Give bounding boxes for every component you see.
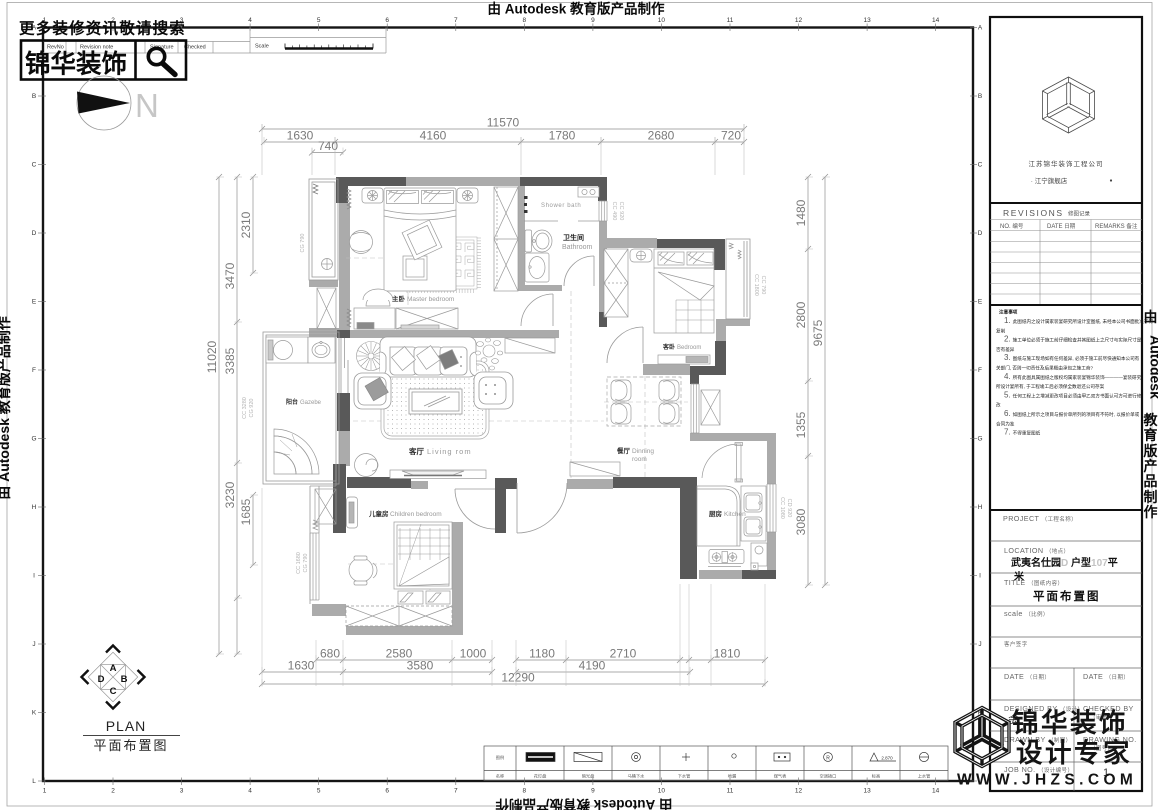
svg-text:12: 12 [795,788,803,795]
svg-text:1780: 1780 [549,129,576,143]
svg-text:11020: 11020 [205,340,219,373]
svg-text:F: F [32,367,36,374]
svg-text:CD 920: CD 920 [786,499,792,518]
svg-text:11: 11 [727,17,734,24]
svg-text:680: 680 [320,647,340,661]
svg-text:REVISIONS: REVISIONS [1003,208,1064,218]
svg-text:H: H [978,504,983,511]
svg-text:CC 790: CC 790 [760,276,766,295]
svg-text:3470: 3470 [223,262,237,289]
svg-text:Autodesk: Autodesk [1148,335,1158,399]
svg-text:9675: 9675 [811,319,825,346]
svg-text:9: 9 [591,17,595,24]
svg-text:3: 3 [180,788,184,795]
svg-text:1480: 1480 [794,199,808,226]
svg-text:图例: 图例 [496,754,504,761]
svg-text:卫生间: 卫生间 [563,233,584,242]
svg-text:马桶下水: 马桶下水 [628,773,646,780]
svg-text:1180: 1180 [529,647,555,661]
svg-text:6: 6 [385,17,389,24]
svg-text:9: 9 [591,788,595,795]
svg-text:14: 14 [932,17,940,24]
svg-text:E: E [978,299,983,306]
svg-text:否有差异: 否有差异 [996,346,1015,353]
svg-text:G: G [977,436,982,443]
svg-text:H: H [32,504,37,511]
svg-text:1630: 1630 [288,659,315,673]
svg-text:3230: 3230 [223,481,237,508]
svg-text:D: D [32,230,37,237]
svg-text:Kitchen: Kitchen [724,511,746,518]
svg-text:DATE 日期: DATE 日期 [1047,223,1076,230]
svg-text:CG 920: CG 920 [249,399,255,418]
svg-text:2310: 2310 [239,211,253,238]
svg-text:4190: 4190 [579,659,606,673]
svg-text:8: 8 [522,788,526,795]
svg-text:Children bedroom: Children bedroom [390,511,442,518]
svg-text:客户签字: 客户签字 [1004,640,1028,648]
svg-text:7: 7 [454,17,458,24]
svg-text:A: A [978,25,983,32]
svg-text:产: 产 [1144,458,1158,474]
svg-text:4: 4 [248,17,252,24]
svg-text:CG 790: CG 790 [303,554,309,573]
svg-text:儿童房: 儿童房 [368,509,389,518]
svg-text:客厅: 客厅 [408,446,424,456]
svg-text:B: B [978,93,982,100]
svg-text:D: D [98,674,105,685]
svg-text:2800: 2800 [794,301,808,328]
svg-text:3580: 3580 [407,659,434,673]
svg-text:13: 13 [863,788,871,795]
svg-text:PLAN: PLAN [106,718,147,734]
svg-text:1: 1 [43,788,47,795]
svg-text:10: 10 [658,17,666,24]
svg-text:1810: 1810 [714,647,741,661]
svg-text:CC 1800: CC 1800 [753,274,759,296]
svg-text:4: 4 [248,788,252,795]
svg-text:名称: 名称 [496,773,504,780]
svg-text:3080: 3080 [794,508,808,535]
svg-text:E: E [32,299,37,306]
svg-text:A: A [110,663,117,674]
svg-text:CC 1680: CC 1680 [296,552,302,574]
svg-text:空调插口: 空调插口 [820,773,837,780]
svg-text:11: 11 [727,788,734,795]
svg-text:R: R [826,756,830,762]
svg-text:由 Autodesk 教育版产品制作: 由 Autodesk 教育版产品制作 [0,316,12,500]
svg-text:Living rom: Living rom [427,447,472,456]
svg-text:CC 920: CC 920 [618,202,624,221]
svg-text:育: 育 [1144,427,1158,443]
svg-text:1000: 1000 [460,647,487,661]
svg-text:J: J [978,641,981,648]
svg-text:12290: 12290 [501,671,535,685]
svg-text:1630: 1630 [287,129,314,143]
svg-text:复制: 复制 [996,327,1006,334]
svg-text:WWW.JHZS.COM: WWW.JHZS.COM [957,772,1137,789]
svg-text:C: C [110,686,117,697]
svg-text:客卧: 客卧 [662,343,675,351]
svg-text:14: 14 [932,788,940,795]
svg-text:由 Autodesk 教育版产品制作: 由 Autodesk 教育版产品制作 [495,797,673,810]
svg-text:Bedroom: Bedroom [677,345,701,351]
svg-text:10: 10 [658,788,666,795]
svg-text:花灯盘: 花灯盘 [534,773,547,780]
svg-text:设计专家: 设计专家 [1016,738,1132,768]
svg-text:CG 790: CG 790 [300,234,306,253]
svg-text:Bathroom: Bathroom [562,244,593,251]
svg-text:2.870: 2.870 [881,756,893,761]
svg-text:平面布置图: 平面布置图 [93,738,168,753]
svg-text:C: C [32,162,37,169]
svg-text:版: 版 [1144,443,1158,459]
svg-text:F: F [978,367,982,374]
svg-text:D: D [978,230,983,237]
svg-text:13: 13 [863,17,871,24]
svg-text:4160: 4160 [420,129,447,143]
svg-text:5: 5 [317,788,321,795]
svg-text:改: 改 [996,402,1001,409]
svg-text:L: L [32,778,36,785]
svg-text:Gazebe: Gazebe [300,400,322,406]
svg-text:CC 490: CC 490 [611,202,617,221]
svg-text:G: G [31,436,36,443]
svg-text:I: I [979,573,981,580]
svg-text:room: room [632,456,647,463]
svg-text:主卧: 主卧 [392,294,406,303]
svg-text:合同为准: 合同为准 [996,420,1015,427]
svg-text:由 Autodesk 教育版产品制作: 由 Autodesk 教育版产品制作 [487,1,665,17]
svg-text:厨房: 厨房 [709,509,723,518]
svg-text:关部门, 否则一切责任及后果概由承包之施工商?: 关部门, 否则一切责任及后果概由承包之施工商? [996,365,1093,372]
svg-text:CC 1080: CC 1080 [779,497,785,519]
svg-text:教: 教 [1144,412,1158,428]
svg-text:煤气表: 煤气表 [774,773,787,780]
svg-text:下水管: 下水管 [678,773,691,780]
svg-text:K: K [32,710,37,717]
svg-text:7: 7 [454,788,458,795]
svg-text:1355: 1355 [794,411,808,438]
svg-text:5: 5 [317,17,321,24]
svg-text:修图记录: 修图记录 [1068,210,1091,218]
svg-text:锦华装饰: 锦华装饰 [25,50,127,79]
svg-text:上水管: 上水管 [918,773,931,780]
svg-text:NO. 编号: NO. 编号 [1000,222,1024,230]
svg-text:阳台: 阳台 [286,398,298,406]
svg-text:锦华装饰: 锦华装饰 [1012,708,1128,738]
svg-text:制: 制 [1144,489,1158,505]
svg-text:武夷名仕园D 户型107平: 武夷名仕园D 户型107平 [1011,556,1118,569]
svg-text:标高: 标高 [872,773,880,780]
svg-text:· 江宁旗舰店: · 江宁旗舰店 [1031,176,1068,185]
svg-text:地漏: 地漏 [728,773,736,780]
svg-text:8: 8 [522,17,526,24]
svg-text:N: N [135,87,159,124]
svg-text:江苏锦华装饰工程公司: 江苏锦华装饰工程公司 [1029,159,1104,168]
svg-text:作: 作 [1144,504,1158,520]
svg-text:Shower bath: Shower bath [541,203,581,209]
svg-text:C: C [978,162,983,169]
svg-text:3385: 3385 [223,347,237,374]
svg-text:2: 2 [111,788,115,795]
svg-text:米: 米 [1014,570,1025,583]
svg-text:品: 品 [1144,473,1158,489]
svg-text:I: I [33,573,35,580]
svg-text:Dinning: Dinning [632,448,654,455]
svg-text:平面布置图: 平面布置图 [1033,589,1101,603]
svg-text:注意事项: 注意事项 [999,309,1018,316]
svg-text:11570: 11570 [487,116,520,130]
svg-text:12: 12 [795,17,803,24]
svg-text:REMARKS 备注: REMARKS 备注 [1095,222,1138,230]
svg-text:720: 720 [721,129,741,143]
svg-text:B: B [121,674,128,685]
svg-text:CC 3280: CC 3280 [242,397,248,419]
svg-text:1685: 1685 [239,498,253,525]
svg-text:更多装修资讯敬请搜索: 更多装修资讯敬请搜索 [19,19,186,38]
svg-text:J: J [32,641,35,648]
svg-text:B: B [32,93,36,100]
svg-text:Scale: Scale [255,44,269,50]
svg-text:6: 6 [385,788,389,795]
svg-text:Master bedroom: Master bedroom [407,296,454,303]
svg-text:2680: 2680 [648,129,675,143]
svg-text:餐厅: 餐厅 [616,446,631,455]
svg-text:所设计宴所有, 于工程竣工后必须保全数退还公司存案: 所设计宴所有, 于工程竣工后必须保全数退还公司存案 [996,383,1105,390]
svg-text:2710: 2710 [610,647,637,661]
svg-text:740: 740 [318,139,338,153]
svg-text:暗光盘: 暗光盘 [582,773,595,780]
